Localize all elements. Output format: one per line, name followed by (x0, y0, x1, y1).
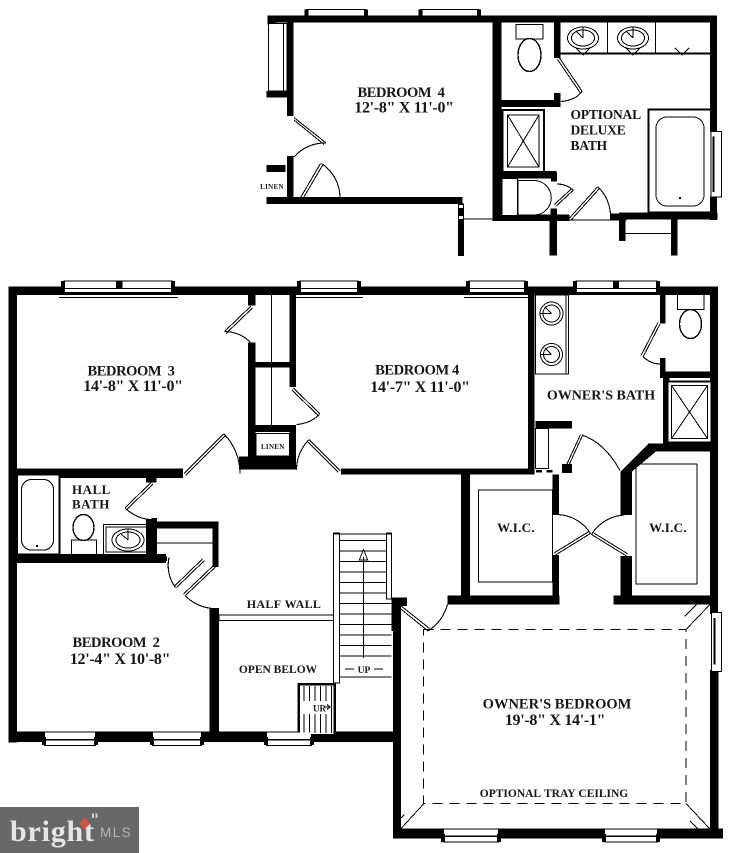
svg-text:DELUXE: DELUXE (571, 123, 626, 138)
svg-text:OPTIONAL: OPTIONAL (571, 107, 642, 122)
svg-text:OPTIONAL TRAY CEILING: OPTIONAL TRAY CEILING (480, 788, 629, 800)
svg-text:HALF WALL: HALF WALL (247, 597, 321, 611)
svg-text:UR: UR (313, 704, 326, 714)
svg-text:19'-8" X 14'-1": 19'-8" X 14'-1" (505, 712, 605, 729)
svg-text:BATH: BATH (72, 497, 110, 512)
svg-text:OWNER'S BEDROOM: OWNER'S BEDROOM (483, 697, 632, 713)
svg-text:BEDROOM 4: BEDROOM 4 (375, 363, 459, 379)
svg-text:UP: UP (358, 666, 371, 676)
svg-text:14'-8" X 11'-0": 14'-8" X 11'-0" (83, 378, 183, 395)
svg-text:bright: bright (10, 815, 95, 848)
svg-text:OPEN BELOW: OPEN BELOW (239, 664, 318, 676)
svg-text:12'-8" X 11'-0": 12'-8" X 11'-0" (354, 100, 454, 117)
svg-text:MLS: MLS (100, 825, 132, 840)
svg-text:BATH: BATH (571, 138, 608, 153)
svg-text:BEDROOM 2: BEDROOM 2 (72, 635, 159, 651)
svg-text:12'-4" X 10'-8": 12'-4" X 10'-8" (70, 651, 170, 668)
svg-text:W.I.C.: W.I.C. (649, 520, 687, 535)
svg-text:W.I.C.: W.I.C. (497, 520, 535, 535)
svg-text:HALL: HALL (72, 482, 111, 497)
svg-text:14'-7" X 11'-0": 14'-7" X 11'-0" (370, 379, 470, 396)
svg-text:LINEN: LINEN (261, 443, 285, 451)
svg-text:LINEN: LINEN (260, 183, 284, 191)
svg-text:OWNER'S BATH: OWNER'S BATH (547, 389, 655, 404)
